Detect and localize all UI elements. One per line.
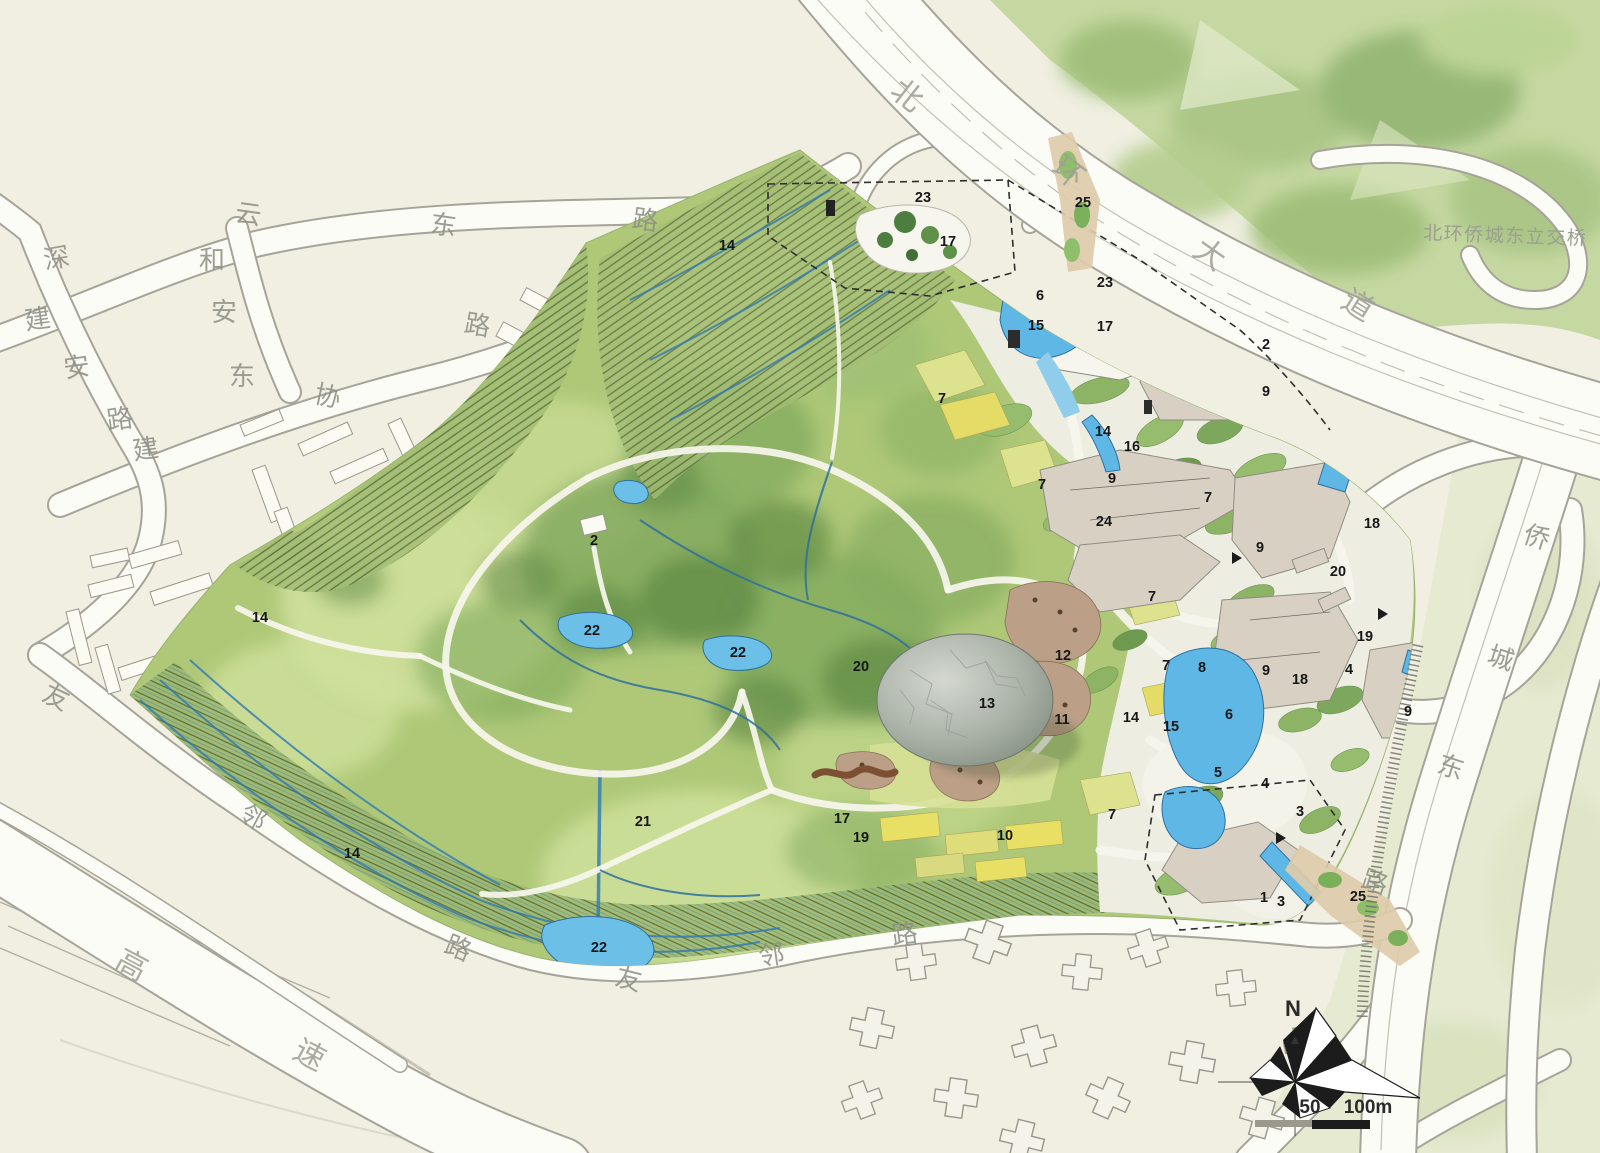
region-label-14: 14: [1095, 424, 1111, 440]
region-label-7: 7: [938, 391, 946, 407]
region-label-17: 17: [834, 811, 850, 827]
road-name-char: 深: [41, 242, 72, 275]
road-name-char: 路: [462, 309, 493, 342]
scale-50-label: 50: [1299, 1097, 1320, 1118]
site-plan-map: N 50 100m 北环侨城东立交桥 深云东路和安东路建安路建协北环大道友邻路友…: [0, 0, 1600, 1153]
region-label-13: 13: [979, 696, 995, 712]
region-label-8: 8: [1198, 660, 1206, 676]
region-label-9: 9: [1256, 540, 1264, 556]
region-label-7: 7: [1204, 490, 1212, 506]
road-name-char: 东: [229, 362, 255, 391]
region-label-20: 20: [853, 659, 869, 675]
region-label-18: 18: [1292, 672, 1308, 688]
region-label-15: 15: [1163, 719, 1179, 735]
road-name-char: 路: [105, 403, 135, 435]
region-label-9: 9: [1262, 663, 1270, 679]
region-label-10: 10: [997, 828, 1013, 844]
region-label-9: 9: [1262, 384, 1270, 400]
road-name-char: 建: [23, 303, 53, 335]
region-label-20: 20: [1330, 564, 1346, 580]
region-label-4: 4: [1261, 776, 1269, 792]
region-label-22: 22: [730, 645, 746, 661]
region-label-6: 6: [1225, 707, 1233, 723]
north-label: N: [1285, 996, 1301, 1021]
region-label-7: 7: [1148, 589, 1156, 605]
road-name-char: 和: [199, 246, 225, 275]
region-label-25: 25: [1350, 889, 1366, 905]
region-label-23: 23: [915, 190, 931, 206]
road-name-char: 安: [211, 298, 237, 327]
region-label-22: 22: [584, 623, 600, 639]
road-name-char: 云: [233, 198, 263, 230]
region-label-25: 25: [1075, 195, 1091, 211]
region-label-14: 14: [719, 238, 735, 254]
region-label-18: 18: [1364, 516, 1380, 532]
region-label-24: 24: [1096, 514, 1112, 530]
region-label-17: 17: [1097, 319, 1113, 335]
region-label-12: 12: [1055, 648, 1071, 664]
region-label-6: 6: [1036, 288, 1044, 304]
region-label-9: 9: [1404, 704, 1412, 720]
region-label-23: 23: [1097, 275, 1113, 291]
region-label-14: 14: [344, 846, 360, 862]
road-name-char: 路: [630, 204, 660, 236]
region-label-5: 5: [1214, 765, 1222, 781]
region-label-17: 17: [940, 234, 956, 250]
region-label-7: 7: [1162, 658, 1170, 674]
region-label-4: 4: [1345, 662, 1353, 678]
region-label-9: 9: [1108, 471, 1116, 487]
road-name-char: 东: [428, 209, 458, 241]
master-plan-svg: N 50 100m 北环侨城东立交桥 深云东路和安东路建安路建协北环大道友邻路友…: [0, 0, 1600, 1153]
region-label-16: 16: [1124, 439, 1140, 455]
region-label-1: 1: [1260, 890, 1268, 906]
road-name-char: 安: [62, 351, 92, 383]
road-name-char: 路: [890, 918, 920, 950]
region-label-2: 2: [590, 533, 598, 549]
region-label-15: 15: [1028, 318, 1044, 334]
region-label-2: 2: [1262, 337, 1270, 353]
region-label-3: 3: [1277, 894, 1285, 910]
region-label-14: 14: [252, 610, 268, 626]
road-name-char: 邻: [757, 939, 787, 971]
region-label-7: 7: [1108, 807, 1116, 823]
region-label-19: 19: [853, 830, 869, 846]
region-label-14: 14: [1123, 710, 1139, 726]
region-label-19: 19: [1357, 629, 1373, 645]
region-label-21: 21: [635, 814, 651, 830]
road-name-char: 建: [131, 433, 161, 465]
scale-100m-label: 100m: [1344, 1097, 1393, 1118]
region-label-22: 22: [591, 940, 607, 956]
region-label-11: 11: [1054, 712, 1069, 728]
region-label-3: 3: [1296, 804, 1304, 820]
region-label-7: 7: [1038, 477, 1046, 493]
